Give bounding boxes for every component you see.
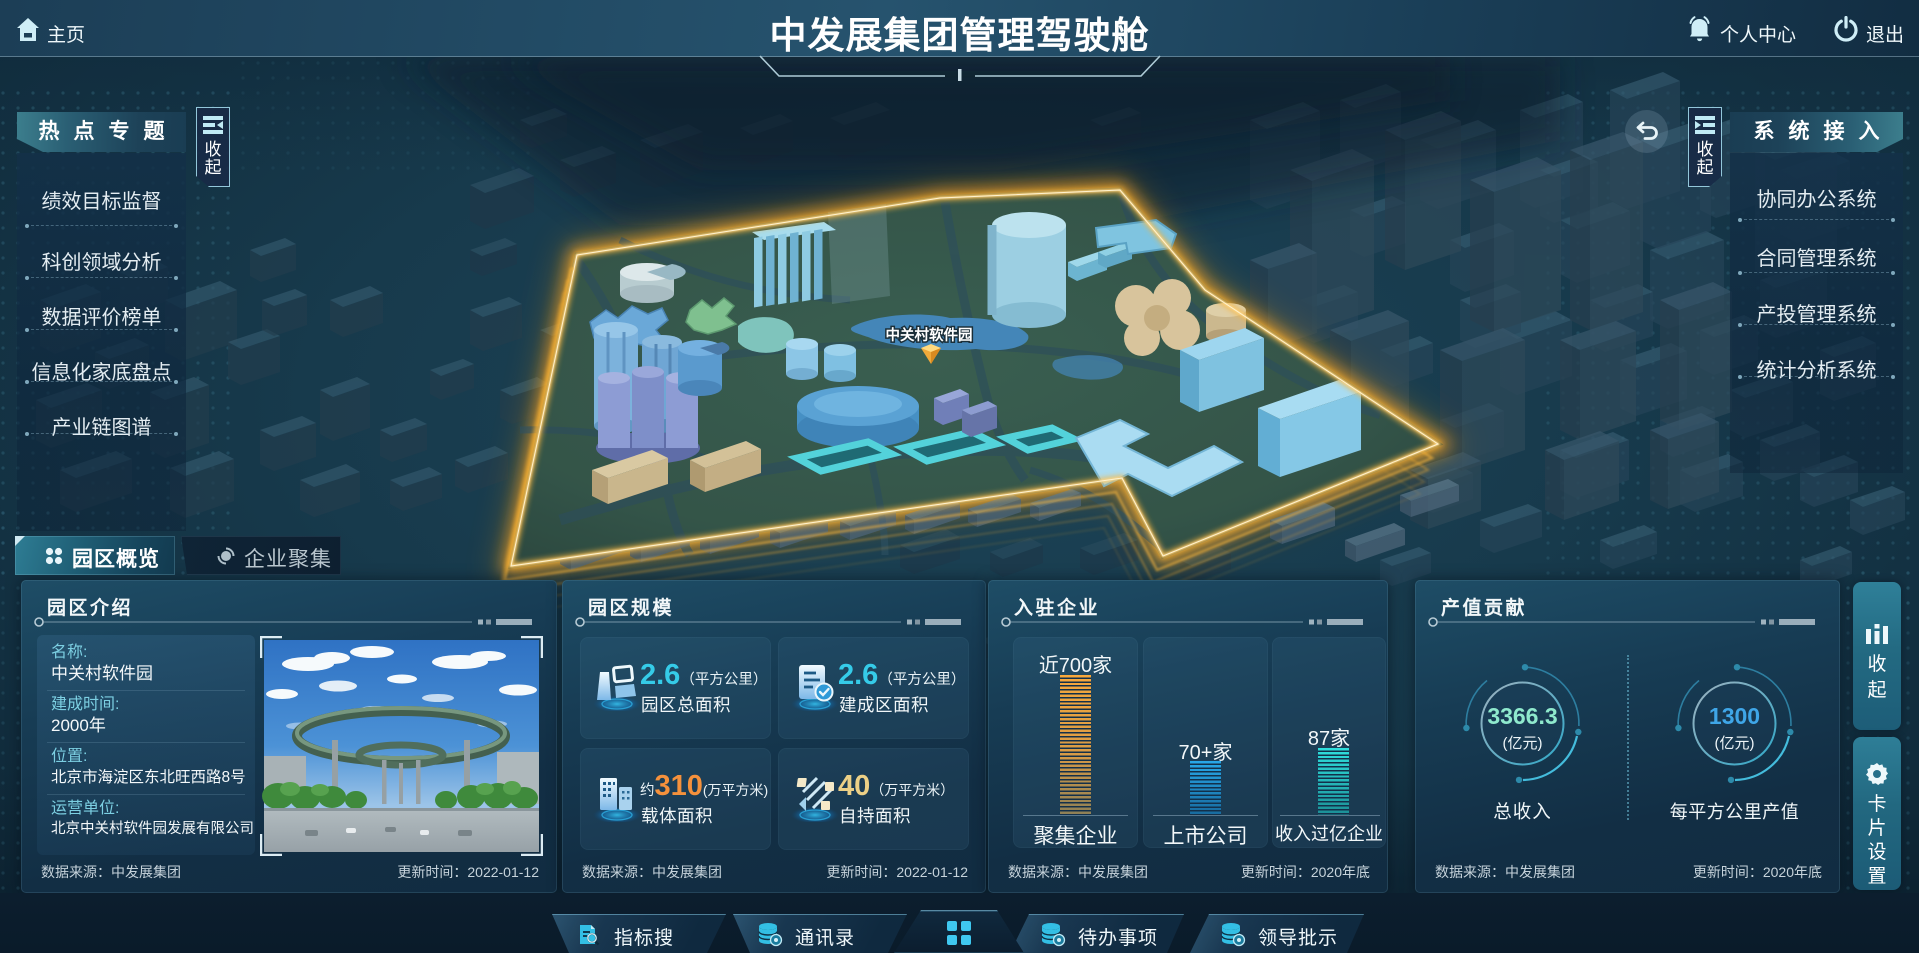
svg-text:中关村软件园: 中关村软件园 bbox=[886, 326, 973, 344]
